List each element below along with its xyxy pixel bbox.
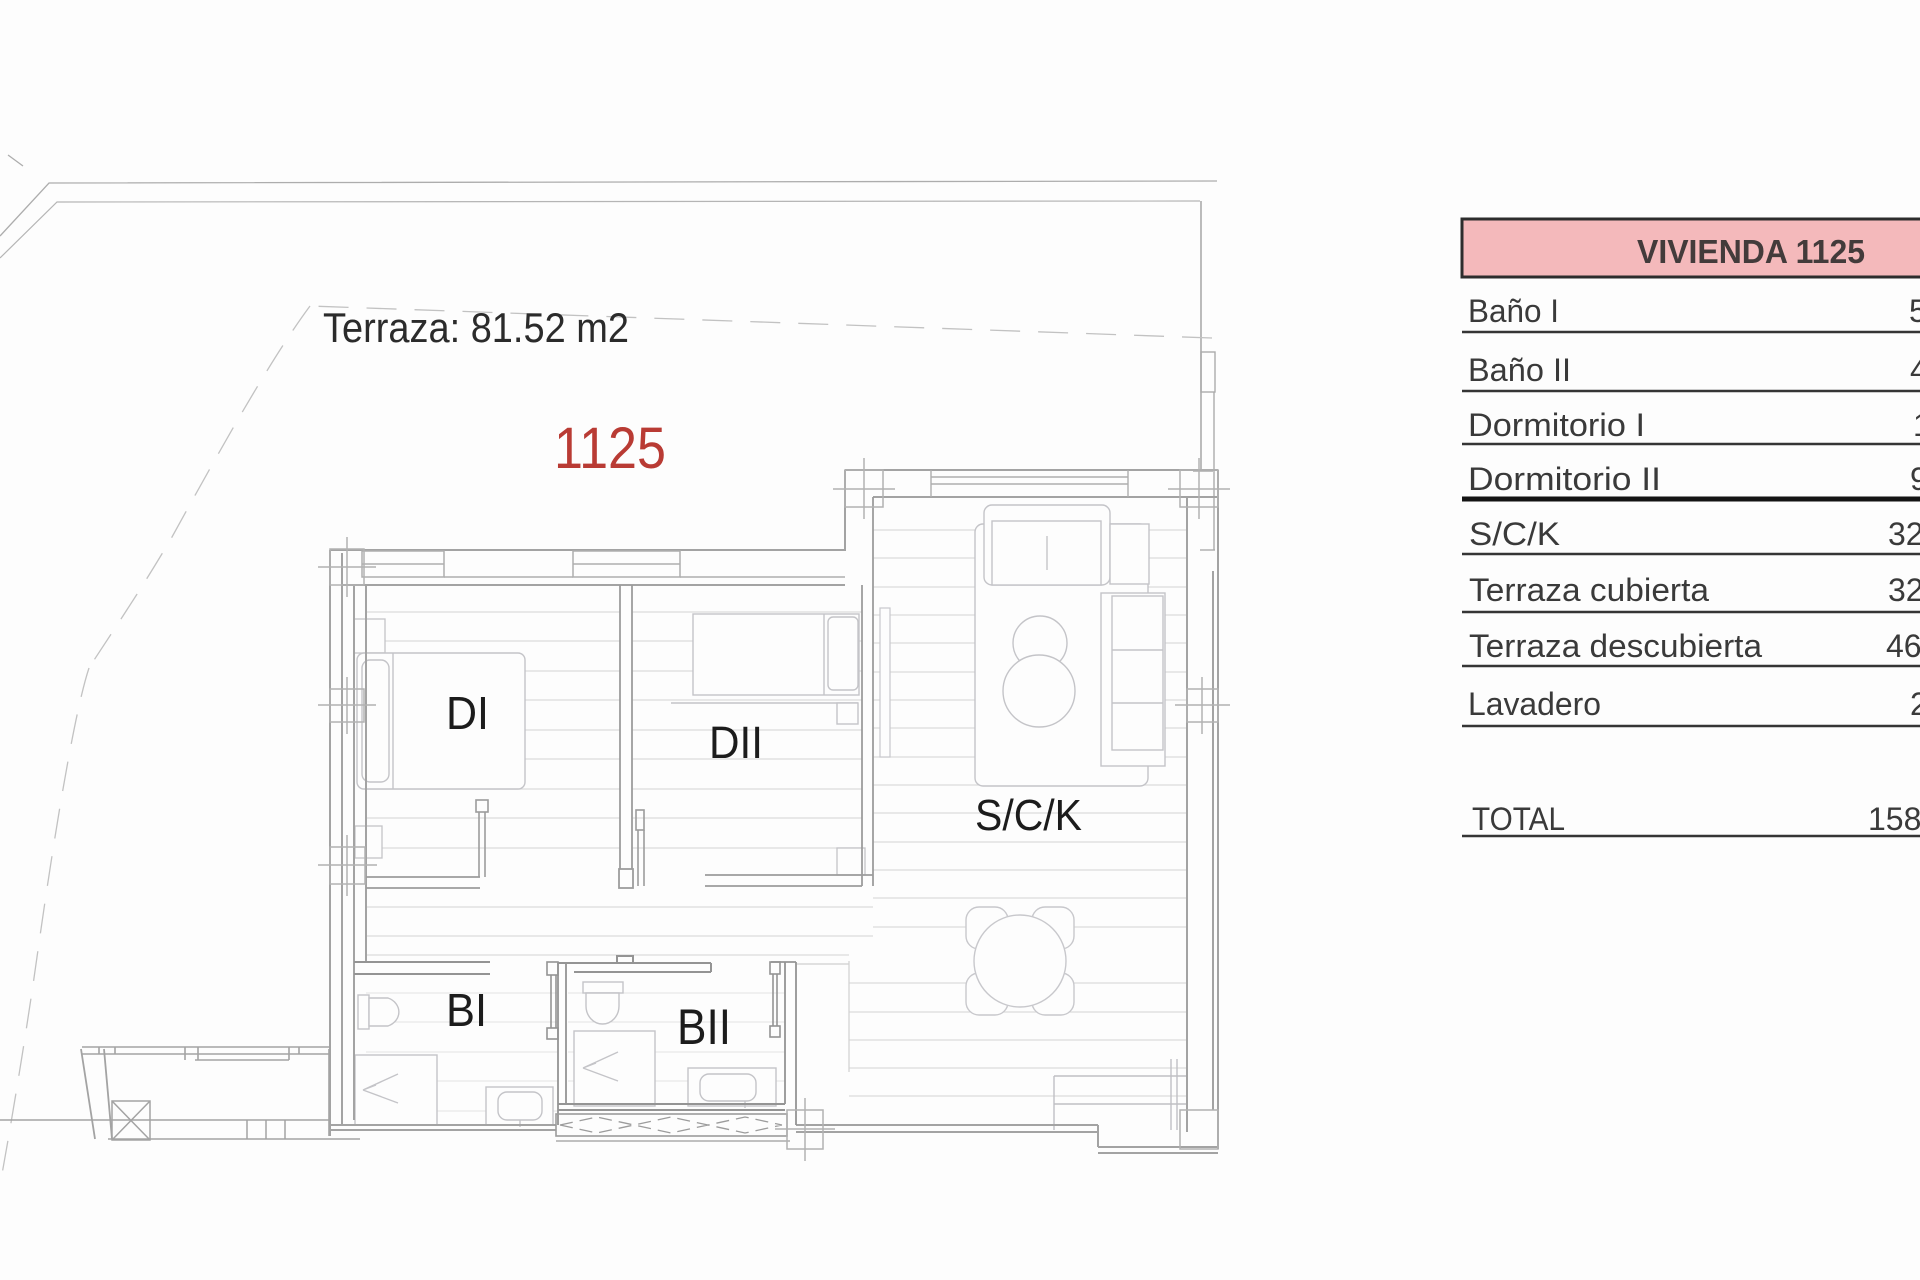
svg-text:VIVIENDA 1125: VIVIENDA 1125 — [1637, 233, 1865, 270]
svg-text:DI: DI — [446, 687, 489, 739]
svg-text:TOTAL: TOTAL — [1472, 801, 1565, 837]
svg-text:32: 32 — [1888, 516, 1920, 552]
svg-text:32: 32 — [1888, 572, 1920, 608]
svg-text:1125: 1125 — [554, 416, 666, 481]
svg-text:Dormitorio I: Dormitorio I — [1468, 407, 1645, 443]
svg-text:S/C/K: S/C/K — [1469, 516, 1560, 552]
svg-text:46: 46 — [1886, 628, 1920, 664]
svg-text:4: 4 — [1910, 352, 1920, 388]
svg-text:BII: BII — [677, 999, 731, 1055]
svg-text:1: 1 — [1913, 407, 1920, 443]
svg-text:Terraza: 81.52 m2: Terraza: 81.52 m2 — [323, 304, 629, 351]
svg-text:Baño II: Baño II — [1468, 352, 1571, 388]
svg-text:Dormitorio II: Dormitorio II — [1468, 461, 1661, 497]
svg-text:Terraza descubierta: Terraza descubierta — [1469, 628, 1762, 664]
svg-text:158: 158 — [1868, 801, 1920, 837]
svg-text:2: 2 — [1910, 686, 1920, 722]
svg-text:BI: BI — [446, 984, 487, 1036]
svg-text:Terraza cubierta: Terraza cubierta — [1469, 572, 1709, 608]
svg-text:9: 9 — [1910, 461, 1920, 497]
svg-text:Baño I: Baño I — [1468, 293, 1559, 329]
svg-text:Lavadero: Lavadero — [1468, 686, 1601, 722]
svg-text:S/C/K: S/C/K — [975, 791, 1082, 840]
svg-text:DII: DII — [709, 717, 763, 768]
svg-text:5: 5 — [1909, 293, 1920, 329]
